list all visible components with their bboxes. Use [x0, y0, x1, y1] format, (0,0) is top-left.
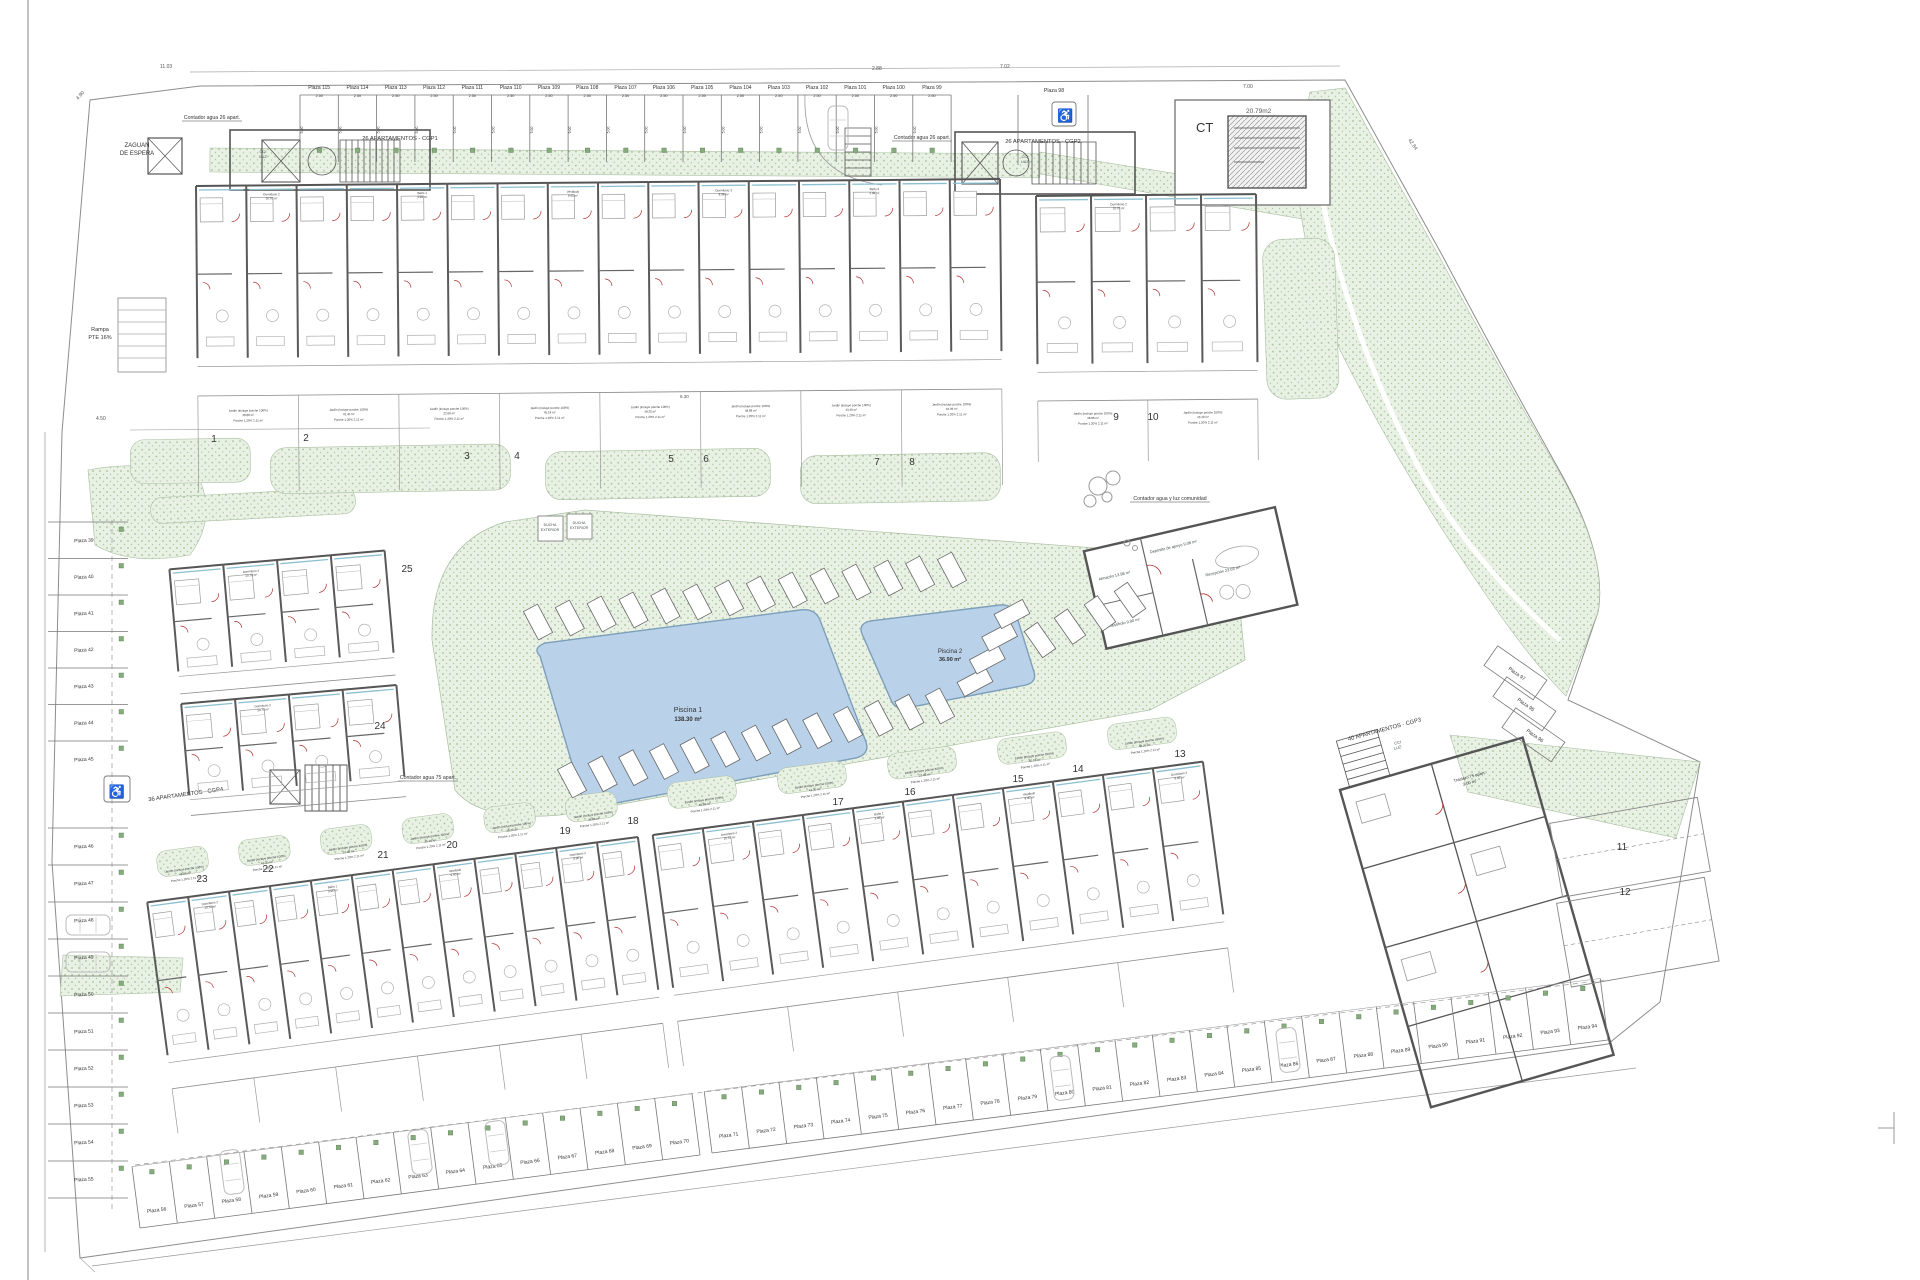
garden-area: 48.88 m² [1087, 416, 1099, 420]
door-swing [381, 898, 390, 907]
door-swing [245, 749, 253, 757]
parking-stall-label: Plaza 90 [1428, 1042, 1448, 1050]
sofa [418, 1000, 442, 1012]
stall-depth-dim: 5.00 [913, 127, 917, 134]
utility-box [1319, 1019, 1324, 1024]
bed [439, 873, 461, 899]
door-swing [834, 208, 842, 216]
utility-box [119, 637, 124, 642]
porch-line [924, 955, 974, 962]
corner-tick [80, 1258, 95, 1272]
party-wall [497, 183, 499, 355]
porche-label: Porche 1.20% 2.11 m² [690, 806, 720, 814]
stall-width-dim: 2.50 [315, 94, 322, 98]
plot-divider [1148, 400, 1149, 461]
utility-box [119, 944, 124, 949]
door-swing [265, 588, 274, 597]
parking-stall-label: Plaza 76 [905, 1108, 925, 1116]
porch-line [824, 969, 874, 976]
table [1169, 316, 1181, 328]
utility-box [509, 148, 514, 153]
bed [803, 193, 826, 217]
table [836, 920, 849, 933]
room-area: 8.96 m² [573, 855, 584, 860]
sofa [257, 336, 285, 345]
sofa [295, 646, 325, 658]
utility-box [1170, 1038, 1175, 1043]
cci-luz-left-2: LUZ [259, 154, 267, 159]
plot-number: 15 [1012, 774, 1024, 785]
party-wall [698, 182, 700, 354]
utility-box [119, 1018, 124, 1023]
block-11-12-building [1327, 691, 1726, 1107]
plot-number: 7 [874, 457, 880, 468]
parking-stall-label: Plaza 47 [74, 880, 94, 887]
exterior-wall [277, 555, 331, 560]
utility-box [448, 1131, 453, 1136]
car-windows [488, 1134, 506, 1152]
table [367, 309, 379, 321]
plot-divider [499, 1045, 505, 1090]
garden-area: 48.88 m² [699, 802, 711, 808]
meter-26a-label: Contador agua 26 apart. [184, 115, 240, 121]
utility-box [1506, 996, 1511, 1001]
stall-divider [468, 1123, 476, 1184]
party-wall [648, 182, 650, 354]
door-swing [1020, 872, 1028, 880]
parking-stall-label: Plaza 52 [74, 1065, 94, 1072]
table [304, 628, 317, 641]
stall-divider [1003, 1054, 1011, 1116]
party-wall [799, 181, 801, 353]
stall-depth-dim: 5.00 [683, 127, 687, 134]
utility-box [946, 1066, 951, 1071]
zaguan-label-2: DE ESPERA [120, 151, 154, 157]
sofa [910, 331, 938, 340]
bed [562, 857, 584, 883]
bed [250, 197, 273, 221]
bed [904, 192, 927, 216]
stall-divider [1040, 1049, 1048, 1111]
door-swing [330, 718, 339, 727]
porch-line [724, 982, 774, 989]
plot-number: 24 [374, 721, 386, 732]
dim-2-88: 2.88 [872, 66, 882, 72]
interior-wall [185, 747, 223, 750]
interior-wall [485, 933, 514, 937]
door-swing [885, 208, 893, 216]
garden-area: 48.25 m² [1139, 743, 1151, 749]
stall-divider [169, 1162, 177, 1223]
parking-stall-label: Plaza 72 [756, 1127, 776, 1135]
door-swing [1208, 289, 1215, 296]
stall-width-dim: 2.50 [813, 94, 820, 98]
strip-block24: Dormitorio 210.70 m² [181, 685, 406, 815]
table [467, 308, 479, 320]
rampa-label-1: Rampa [91, 327, 110, 333]
door-swing [231, 214, 239, 222]
parking-stall-label: Plaza 73 [793, 1122, 813, 1130]
parking-stall-label: Plaza 61 [333, 1182, 353, 1190]
table [585, 954, 598, 967]
party-wall [1201, 195, 1202, 363]
utility-box [119, 527, 124, 532]
stall-depth-dim: 5.00 [645, 127, 649, 134]
porch-line [414, 1024, 455, 1029]
stall-width-dim: 2.50 [737, 94, 744, 98]
utility-box [336, 1145, 341, 1150]
parking-stall-label: Plaza 108 [576, 85, 598, 91]
door-swing [288, 616, 296, 624]
parking-stall-label: Plaza 101 [844, 85, 866, 91]
door-swing [318, 584, 327, 593]
room-area: 3.96 m² [417, 195, 427, 199]
door-swing [246, 976, 254, 984]
parking-stall-label: Plaza 41 [74, 610, 94, 617]
table [317, 309, 329, 321]
parking-stall-label: Plaza 86 [1279, 1061, 1299, 1069]
stall-depth-dim: 5.00 [760, 127, 764, 134]
porch-line [618, 997, 659, 1002]
stall-width-dim: 2.50 [545, 94, 552, 98]
bottom-parking-row: Plaza 56Plaza 57Plaza 58Plaza 59Plaza 60… [132, 978, 1608, 1228]
utility-box [262, 1155, 267, 1160]
party-wall [296, 185, 298, 357]
parking-stall-label: Plaza 74 [831, 1117, 851, 1125]
porche-label: Porche 1.20% 2.11 m² [736, 414, 766, 418]
bed [228, 574, 254, 600]
garden-area: 48.25 m² [644, 409, 656, 413]
door-swing [655, 279, 662, 286]
party-wall [598, 182, 600, 354]
party-wall [849, 180, 851, 352]
utility-box [119, 981, 124, 986]
utility-box [224, 1160, 229, 1165]
sofa [960, 330, 988, 339]
sofa [1030, 918, 1059, 931]
interior-wall [239, 743, 277, 746]
window-line [292, 694, 340, 698]
sofa [172, 1033, 196, 1045]
table [786, 927, 799, 940]
table [422, 976, 435, 989]
room-area: 3.96 m² [328, 888, 339, 893]
sofa [459, 994, 483, 1006]
plot-number: 21 [377, 850, 389, 861]
bed [480, 868, 502, 894]
door-swing [533, 937, 541, 945]
sofa [809, 332, 837, 341]
parking-stall-label: Plaza 84 [1204, 1070, 1224, 1078]
porche-label: Porche 1.20% 2.11 m² [434, 417, 464, 421]
landscape-areas [60, 88, 1700, 996]
exterior-wall [169, 565, 223, 570]
utility-box [486, 1126, 491, 1131]
cci-luz-1112-2: LUZ [1393, 744, 1402, 751]
dim-6-30: 6.30 [680, 394, 689, 399]
stall-width-dim: 2.50 [660, 94, 667, 98]
utility-box [909, 1071, 914, 1076]
interior-wall [174, 618, 212, 621]
garden-area: 45.18 m² [424, 838, 436, 844]
party-wall [1036, 196, 1037, 364]
parking-stall-label: Plaza 54 [74, 1139, 94, 1146]
door-swing [299, 745, 307, 753]
porch-line [179, 672, 233, 677]
bed [908, 810, 934, 837]
interior-wall [347, 733, 385, 736]
sofa [187, 656, 217, 668]
garden-area: 43.40 m² [845, 408, 857, 412]
utility-box [797, 1085, 802, 1090]
plot-number: 13 [1174, 749, 1186, 760]
ct-transformer: CT 20.79m2 [1175, 100, 1330, 205]
interior-wall [335, 604, 373, 607]
bed [552, 195, 575, 219]
stall-divider [966, 1059, 974, 1121]
parking-stall-label: Plaza 82 [1129, 1080, 1149, 1088]
door-swing [340, 904, 349, 913]
door-swing [627, 866, 636, 875]
sofa [241, 651, 271, 663]
table [518, 307, 530, 319]
stall-divider [319, 1142, 327, 1203]
garden-area: 43.40 m² [809, 787, 821, 793]
interior-wall [713, 902, 748, 907]
porch-line [233, 667, 287, 672]
parking-stall-label: Plaza 79 [1017, 1094, 1037, 1102]
door-swing [483, 211, 491, 219]
interior-wall [199, 971, 228, 975]
window-line [346, 689, 394, 693]
party-wall [385, 551, 394, 653]
stall-divider [891, 1068, 899, 1130]
bed [1205, 206, 1230, 230]
parking-stall-label: Plaza 48 [74, 917, 94, 924]
porche-label: Porche 1.20% 2.11 m² [1131, 747, 1161, 755]
utility-box [411, 1135, 416, 1140]
porch-line [1074, 935, 1124, 942]
car-windows [223, 1163, 241, 1181]
strip-bottom [180, 675, 395, 694]
dim-7-00: 7.00 [1243, 84, 1253, 90]
door-swing [935, 207, 943, 215]
plot-divider [788, 1007, 794, 1052]
parking-stall-label: Plaza 91 [1465, 1037, 1485, 1045]
utility-box [119, 833, 124, 838]
door-swing [970, 879, 978, 887]
door-swing [784, 209, 792, 217]
utility-box [1021, 1057, 1026, 1062]
room-area: 3.96 m² [869, 191, 879, 195]
table [736, 934, 749, 947]
parking-stall-label: Plaza 113 [385, 85, 407, 91]
porch-line [250, 1046, 291, 1051]
porche-label: Porche 1.20% 2.11 m² [800, 791, 830, 799]
bed [200, 198, 223, 222]
window-line [334, 555, 382, 559]
stall-divider [1190, 1030, 1198, 1092]
stall-width-dim: 2.50 [890, 94, 897, 98]
door-swing [276, 723, 285, 732]
plot-divider [1228, 948, 1234, 993]
block-cgp3-label: 40 APARTAMENTOS - CGP3 [1347, 717, 1422, 742]
door-swing [303, 282, 310, 289]
plot-number: 14 [1072, 764, 1084, 775]
table [217, 1003, 230, 1016]
door-swing [454, 280, 461, 287]
sofa [830, 944, 859, 957]
utility-box [759, 1090, 764, 1095]
table [1187, 874, 1200, 887]
parking-stall-label: Plaza 81 [1092, 1084, 1112, 1092]
sofa [206, 337, 234, 346]
utility-box [892, 148, 897, 153]
interior-wall [567, 922, 596, 926]
stall-divider [207, 1157, 215, 1218]
plot-number: 16 [904, 787, 916, 798]
party-wall [396, 685, 404, 776]
stall-divider [505, 1118, 513, 1179]
table [819, 305, 831, 317]
party-wall [1091, 196, 1092, 364]
parking-stall-label: Plaza 106 [653, 85, 675, 91]
room-area: 10.70 m² [245, 573, 257, 578]
parking-stall-label: Plaza 93 [1540, 1028, 1560, 1036]
porche-label: Porche 1.20% 2.11 m² [334, 853, 364, 861]
table [970, 303, 982, 315]
ducha-label-1b: EXTERIOR [541, 528, 560, 532]
stall-divider [1302, 1016, 1310, 1078]
dim-42-84: 42.84 [1406, 138, 1418, 152]
door-swing [756, 278, 763, 285]
door-swing [203, 282, 210, 289]
door-swing [555, 279, 562, 286]
door-swing [1131, 223, 1139, 231]
pool1-name: Piscina 1 [674, 707, 703, 714]
table [258, 998, 271, 1011]
car-windows [411, 1143, 429, 1161]
sofa [359, 767, 389, 779]
interior-wall [526, 928, 555, 932]
parking-stall-label: Plaza 89 [1391, 1047, 1411, 1055]
door-swing [504, 280, 511, 287]
plot-number: 9 [1113, 412, 1119, 423]
ducha-label-1a: DUCHA [544, 523, 557, 527]
utility-box [700, 148, 705, 153]
door-swing [684, 210, 692, 218]
table [358, 624, 371, 637]
parking-stall-label: Plaza 112 [423, 85, 445, 91]
bed [240, 709, 266, 735]
window-line [185, 703, 233, 707]
party-wall [749, 181, 751, 353]
table [1224, 315, 1236, 327]
utility-box [1543, 991, 1548, 996]
party-wall [1203, 762, 1223, 915]
parking-stall-label: Plaza 68 [595, 1148, 615, 1156]
plot-divider [581, 1034, 587, 1079]
utility-box [119, 907, 124, 912]
stall-divider [617, 1103, 625, 1164]
interior-wall [1063, 855, 1098, 860]
porch-line [209, 1052, 250, 1057]
bed [502, 195, 525, 219]
table [1087, 887, 1100, 900]
strip-block25: Dormitorio 210.70 m² [169, 551, 395, 694]
party-wall [397, 184, 399, 356]
trees [1084, 471, 1138, 551]
door-swing [300, 909, 309, 918]
stall-depth-dim: 5.00 [875, 127, 879, 134]
stall-width-dim: 2.50 [852, 94, 859, 98]
wheelchair-icon: ♿ [1057, 108, 1073, 123]
plot-divider [1258, 399, 1259, 460]
interior-wall [228, 614, 266, 617]
parking-stall-label: Plaza 39 [74, 537, 94, 544]
garden-area: 45.18 m² [544, 410, 556, 414]
utility-box [119, 673, 124, 678]
table [381, 981, 394, 994]
utility-box [1431, 1005, 1436, 1010]
table [686, 940, 699, 953]
bed [1150, 207, 1175, 231]
table [503, 965, 516, 978]
party-wall [196, 186, 198, 358]
room-area: 9.90 m² [568, 194, 578, 198]
sofa [348, 641, 378, 653]
ducha-label-2b: EXTERIOR [570, 526, 589, 530]
plot-number: 12 [1619, 887, 1631, 898]
door-swing [692, 857, 701, 866]
stall-divider [356, 1137, 364, 1198]
door-swing [586, 871, 595, 880]
door-swing [1170, 852, 1178, 860]
interior-wall [280, 961, 309, 965]
sofa [730, 958, 759, 971]
stall-divider [281, 1147, 289, 1208]
utility-box [871, 1076, 876, 1081]
stall-depth-dim: 5.00 [798, 127, 802, 134]
table [369, 750, 382, 763]
communal-building: Almacén 13.98 m² Recepción 23.65 m² Vest… [1084, 507, 1297, 649]
bed [958, 803, 984, 830]
parking-stall-label: Plaza 50 [74, 991, 94, 998]
stall-divider [1451, 997, 1459, 1059]
door-swing [770, 906, 778, 914]
door-swing [369, 959, 377, 967]
utility-box [1581, 986, 1586, 991]
interior-wall [239, 966, 268, 970]
porch-line [169, 1057, 210, 1062]
porch-line [577, 1003, 618, 1008]
parking-stall-label: Plaza 107 [614, 85, 636, 91]
parking-stall-label: Plaza 115 [308, 85, 330, 91]
utility-box [1357, 1014, 1362, 1019]
interior-wall [1013, 862, 1048, 867]
sofa [880, 938, 909, 951]
bed [1095, 207, 1120, 231]
stall-divider [655, 1098, 663, 1159]
parking-stall-label: Plaza 88 [1353, 1052, 1373, 1060]
strip-18-23: Dormitorio 210.70 m²Baño 13.96 m²Vestíbu… [141, 788, 669, 1133]
utility-box [1133, 1043, 1138, 1048]
stall-width-dim: 2.50 [928, 94, 935, 98]
interior-wall [963, 869, 998, 874]
room-area: 10.70 m² [257, 707, 269, 712]
party-wall [899, 180, 901, 352]
porch-line [340, 658, 394, 663]
